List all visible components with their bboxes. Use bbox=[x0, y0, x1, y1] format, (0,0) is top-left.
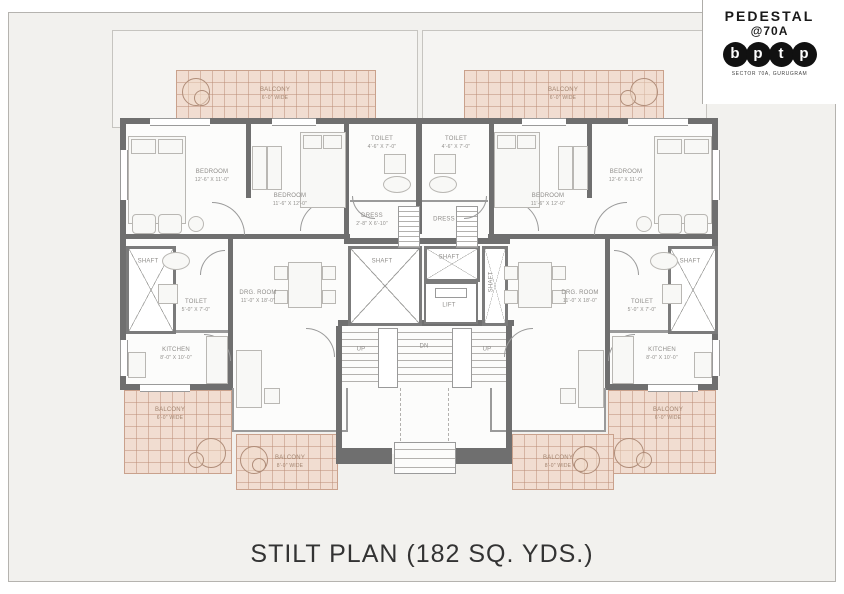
basin-symbol bbox=[383, 176, 411, 193]
logo-letter: p bbox=[746, 42, 771, 67]
stair-direction-label: UP bbox=[357, 346, 366, 354]
plant-symbol bbox=[194, 90, 210, 106]
room-label-balcony: BALCONY 6'-0" WIDE bbox=[653, 407, 683, 421]
chair-symbol bbox=[274, 266, 288, 280]
window bbox=[120, 340, 128, 376]
chair-symbol bbox=[504, 290, 518, 304]
room-label-balcony: BALCONY 8'-0" WIDE bbox=[543, 455, 573, 469]
sink-symbol bbox=[128, 352, 146, 378]
entrance-steps bbox=[394, 442, 456, 474]
room-label-dress: DRESS 2'-8" X 6'-10" bbox=[356, 213, 388, 227]
stool-symbol bbox=[188, 216, 204, 232]
sofa-symbol bbox=[236, 350, 262, 408]
brand-sub-name: @70A bbox=[703, 24, 836, 38]
room-label-kitchen: KITCHEN 8'-0" X 10'-0" bbox=[160, 347, 192, 361]
chair-symbol bbox=[658, 214, 682, 234]
stair-dashed-line bbox=[400, 388, 401, 446]
chair-symbol bbox=[158, 214, 182, 234]
pillow-symbol bbox=[684, 139, 709, 154]
plant-symbol bbox=[620, 90, 636, 106]
pillow-symbol bbox=[657, 139, 682, 154]
entrance-wall-stub bbox=[336, 448, 392, 464]
room-label-balcony: BALCONY 8'-0" WIDE bbox=[275, 455, 305, 469]
logo-letter: p bbox=[792, 42, 817, 67]
chair-symbol bbox=[322, 290, 336, 304]
bptp-logo-icon: b p t p bbox=[703, 42, 836, 67]
stair-newel bbox=[378, 328, 398, 388]
side-table-symbol bbox=[560, 388, 576, 404]
brand-name: PEDESTAL bbox=[703, 8, 836, 24]
room-name: BEDROOM bbox=[195, 169, 229, 177]
basin-symbol bbox=[158, 284, 178, 304]
brand-location: SECTOR 70A, GURUGRAM bbox=[703, 71, 836, 77]
stair-direction-label: UP bbox=[483, 346, 492, 354]
chair-symbol bbox=[552, 266, 566, 280]
room-label-balcony: BALCONY 6'-0" WIDE bbox=[155, 407, 185, 421]
window bbox=[150, 118, 210, 126]
room-label-dress: DRESS bbox=[433, 216, 455, 224]
plan-title: STILT PLAN (182 SQ. YDS.) bbox=[0, 540, 844, 569]
plant-symbol bbox=[188, 452, 204, 468]
wardrobe-symbol bbox=[558, 146, 573, 190]
room-label-shaft: SHAFT bbox=[680, 258, 701, 266]
room-label-balcony: BALCONY 6'-0" WIDE bbox=[548, 87, 578, 101]
wall bbox=[490, 388, 492, 432]
entrance-wall-stub bbox=[456, 448, 512, 464]
pillow-symbol bbox=[323, 135, 342, 149]
room-label-shaft: SHAFT bbox=[488, 272, 496, 293]
wall bbox=[232, 388, 234, 432]
room-label-bedroom: BEDROOM 11'-6" X 12'-0" bbox=[273, 193, 307, 207]
room-label-toilet: TOILET 4'-6" X 7'-0" bbox=[368, 136, 397, 150]
wc-symbol bbox=[162, 252, 190, 270]
dining-table-symbol bbox=[518, 262, 552, 308]
chair-symbol bbox=[322, 266, 336, 280]
lift-door-symbol bbox=[435, 288, 467, 298]
wall bbox=[344, 238, 510, 244]
wall bbox=[346, 388, 348, 432]
room-label-drg-room: DRG. ROOM 11'-0" X 18'-0" bbox=[561, 290, 598, 304]
wall bbox=[228, 239, 233, 390]
wall bbox=[246, 118, 251, 198]
chair-symbol bbox=[132, 214, 156, 234]
window bbox=[648, 384, 698, 392]
window bbox=[272, 118, 316, 126]
window bbox=[712, 340, 720, 376]
sink-symbol bbox=[694, 352, 712, 378]
room-dims: 12'-6" X 11'-0" bbox=[195, 177, 229, 183]
room-label-shaft: SHAFT bbox=[372, 258, 393, 266]
wc-symbol bbox=[650, 252, 678, 270]
stair-newel bbox=[452, 328, 472, 388]
stairs bbox=[342, 326, 506, 386]
wall bbox=[604, 388, 606, 432]
wardrobe-symbol bbox=[573, 146, 588, 190]
room-label-toilet: TOILET 4'-6" X 7'-0" bbox=[442, 136, 471, 150]
room-label-shaft: SHAFT bbox=[439, 254, 460, 262]
kitchen-counter-symbol bbox=[206, 336, 228, 384]
window bbox=[522, 118, 566, 126]
logo-letter: b bbox=[723, 42, 748, 67]
wc-symbol bbox=[384, 154, 406, 174]
kitchen-counter-symbol bbox=[612, 336, 634, 384]
wall bbox=[232, 430, 348, 432]
pillow-symbol bbox=[131, 139, 156, 154]
room-label-balcony: BALCONY 6'-0" WIDE bbox=[260, 87, 290, 101]
logo-letter: t bbox=[769, 42, 794, 67]
room-label-lift: LIFT bbox=[442, 302, 455, 310]
wc-symbol bbox=[434, 154, 456, 174]
stair-direction-label: DN bbox=[419, 343, 428, 351]
room-label-bedroom: BEDROOM 11'-6" X 12'-0" bbox=[531, 193, 565, 207]
basin-symbol bbox=[662, 284, 682, 304]
window bbox=[140, 384, 190, 392]
plant-symbol bbox=[252, 458, 266, 472]
dining-table-symbol bbox=[288, 262, 322, 308]
side-table-symbol bbox=[264, 388, 280, 404]
pillow-symbol bbox=[303, 135, 322, 149]
sofa-symbol bbox=[578, 350, 604, 408]
room-label-bedroom: BEDROOM 12'-6" X 11'-0" bbox=[609, 169, 643, 183]
window bbox=[712, 150, 720, 200]
room-label-bedroom: BEDROOM 12'-6" X 11'-0" bbox=[195, 169, 229, 183]
room-label-kitchen: KITCHEN 8'-0" X 10'-0" bbox=[646, 347, 678, 361]
window bbox=[120, 150, 128, 200]
plant-symbol bbox=[574, 458, 588, 472]
window bbox=[628, 118, 688, 126]
room-label-drg-room: DRG. ROOM 11'-0" X 18'-0" bbox=[239, 290, 276, 304]
room-label-toilet: TOILET 5'-0" X 7'-0" bbox=[182, 299, 211, 313]
pillow-symbol bbox=[497, 135, 516, 149]
stool-symbol bbox=[636, 216, 652, 232]
title-block: PEDESTAL @70A b p t p SECTOR 70A, GURUGR… bbox=[702, 0, 836, 104]
pillow-symbol bbox=[158, 139, 183, 154]
plant-symbol bbox=[636, 452, 652, 468]
wall bbox=[605, 239, 610, 390]
room-label-shaft: SHAFT bbox=[138, 258, 159, 266]
chair-symbol bbox=[504, 266, 518, 280]
shaft-rungs bbox=[398, 206, 420, 248]
chair-symbol bbox=[684, 214, 708, 234]
pillow-symbol bbox=[517, 135, 536, 149]
wardrobe-symbol bbox=[252, 146, 267, 190]
basin-symbol bbox=[429, 176, 457, 193]
wardrobe-symbol bbox=[267, 146, 282, 190]
room-label-toilet: TOILET 5'-0" X 7'-0" bbox=[628, 299, 657, 313]
shaft-box bbox=[424, 246, 480, 282]
stair-dashed-line bbox=[448, 388, 449, 446]
